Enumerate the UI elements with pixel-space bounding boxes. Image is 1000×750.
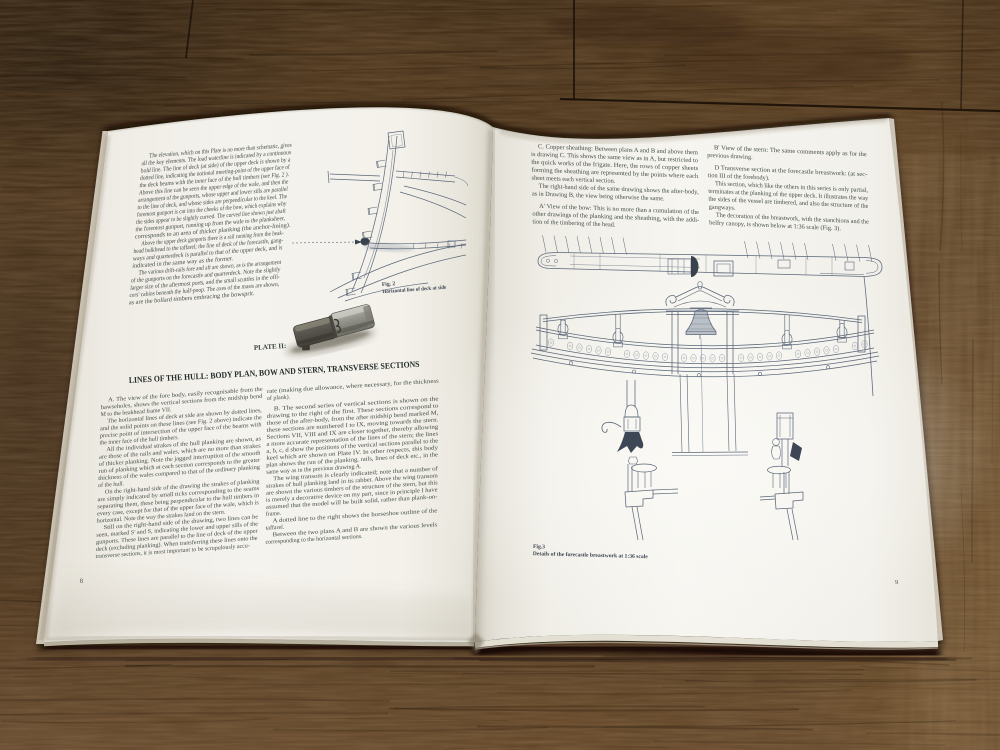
- svg-text:Fig.3: Fig.3: [533, 544, 545, 550]
- svg-text:8: 8: [80, 578, 84, 585]
- svg-text:gangways.: gangways.: [709, 204, 736, 212]
- svg-text:taffarel.: taffarel.: [266, 524, 285, 532]
- svg-text:Fig. 2: Fig. 2: [382, 281, 396, 288]
- svg-text:9: 9: [895, 579, 898, 586]
- svg-text:frame.: frame.: [266, 510, 282, 518]
- svg-text:of plank).: of plank).: [267, 394, 291, 402]
